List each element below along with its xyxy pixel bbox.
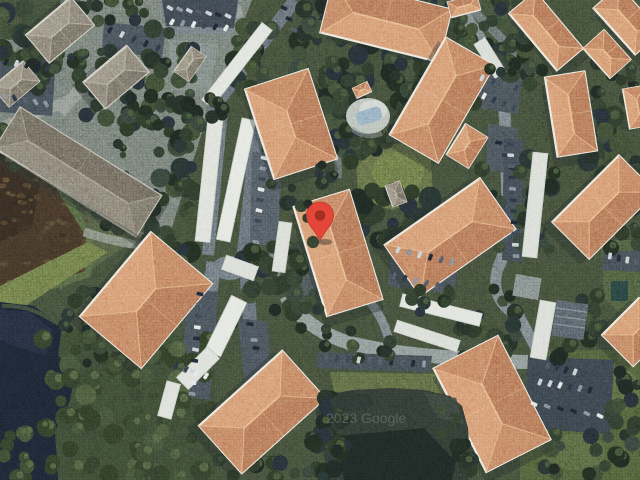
svg-text:2023 Google: 2023 Google [326, 410, 406, 426]
